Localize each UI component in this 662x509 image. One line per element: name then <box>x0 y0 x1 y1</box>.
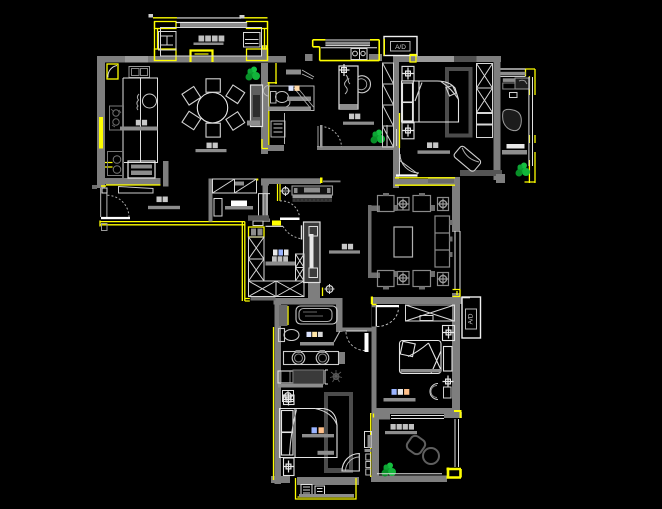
svg-text:A/D: A/D <box>395 44 406 51</box>
svg-text:A/D: A/D <box>468 313 475 324</box>
